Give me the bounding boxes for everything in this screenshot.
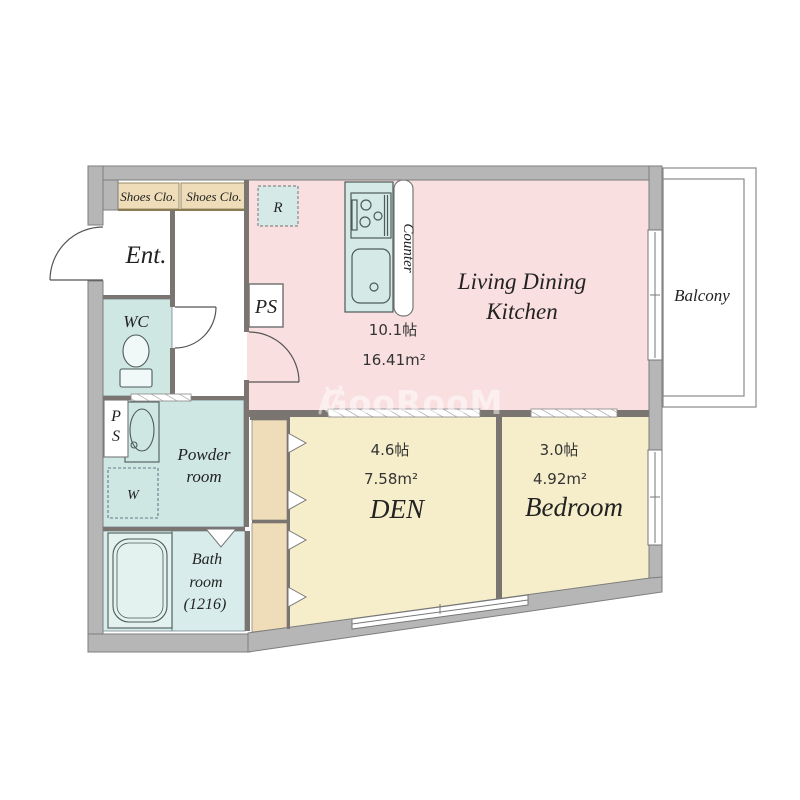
closet-lower xyxy=(252,523,287,632)
toilet-icon xyxy=(123,335,149,367)
shoes-closet-2-label: Shoes Clo. xyxy=(186,189,242,204)
ldk-label-1: Living Dining xyxy=(457,269,586,294)
wall-ent-hall-upper xyxy=(170,210,175,307)
wall-top xyxy=(88,166,662,180)
counter-label: Counter xyxy=(400,223,416,272)
bedroom-area-jo: 3.0帖 xyxy=(540,441,579,459)
ldk-floor xyxy=(247,180,649,410)
pipe-space-top-label: PS xyxy=(254,296,277,318)
wall-powder-right xyxy=(244,400,249,527)
den-area-m2: 7.58m² xyxy=(364,470,418,488)
wall-corner-chunk xyxy=(103,180,118,210)
floor-plan: Shoes Clo. Shoes Clo. Ent. WC R PS P S W… xyxy=(0,0,800,800)
balcony-label: Balcony xyxy=(674,286,730,305)
watermark: GooRooM xyxy=(320,383,504,422)
ldk-area-m2: 16.41m² xyxy=(362,351,426,369)
bedroom-sliding-door xyxy=(531,409,617,417)
wall-bottom-left xyxy=(88,634,250,652)
powder-label-1: Powder xyxy=(177,445,231,464)
bath-label-3: (1216) xyxy=(184,596,227,613)
bedroom-area-m2: 4.92m² xyxy=(533,470,587,488)
powder-label-2: room xyxy=(186,467,221,486)
wall-wc-top xyxy=(103,295,172,299)
den-area-jo: 4.6帖 xyxy=(371,441,410,459)
wc-label: WC xyxy=(123,312,149,331)
wall-bath-right xyxy=(245,531,250,631)
powder-sliding-door xyxy=(131,394,191,401)
wall-closet-divider xyxy=(252,520,287,523)
wall-closet-top xyxy=(250,417,287,420)
wall-right-middle xyxy=(649,360,662,450)
watermark-text: GooRooM xyxy=(320,383,503,422)
ldk-area-jo: 10.1帖 xyxy=(369,321,417,339)
bathtub-surround xyxy=(108,533,172,628)
pipe-space-left-label-p: P xyxy=(110,408,121,425)
toilet-tank xyxy=(120,369,152,387)
bath-label-1: Bath xyxy=(192,551,222,568)
wall-ent-hall-lower xyxy=(170,348,175,396)
wall-left-upper xyxy=(88,166,103,225)
pipe-space-left-label-s: S xyxy=(112,428,120,445)
den-label: DEN xyxy=(369,494,426,524)
washer-label: W xyxy=(127,488,140,503)
floor-plan-canvas: Shoes Clo. Shoes Clo. Ent. WC R PS P S W… xyxy=(0,0,800,800)
refrigerator-label: R xyxy=(272,200,282,216)
ldk-label-2: Kitchen xyxy=(485,299,558,324)
bath-label-2: room xyxy=(189,574,222,591)
wall-left-lower xyxy=(88,281,103,652)
wall-den-bedroom xyxy=(496,417,502,600)
bedroom-label: Bedroom xyxy=(525,492,623,522)
closet-upper xyxy=(252,420,287,520)
shoes-closet-1-label: Shoes Clo. xyxy=(120,189,176,204)
wall-right-upper xyxy=(649,166,662,230)
wall-hall-ldk-upper xyxy=(244,180,249,332)
shoes-closet-base-line xyxy=(118,209,247,211)
entrance-label: Ent. xyxy=(125,242,167,269)
